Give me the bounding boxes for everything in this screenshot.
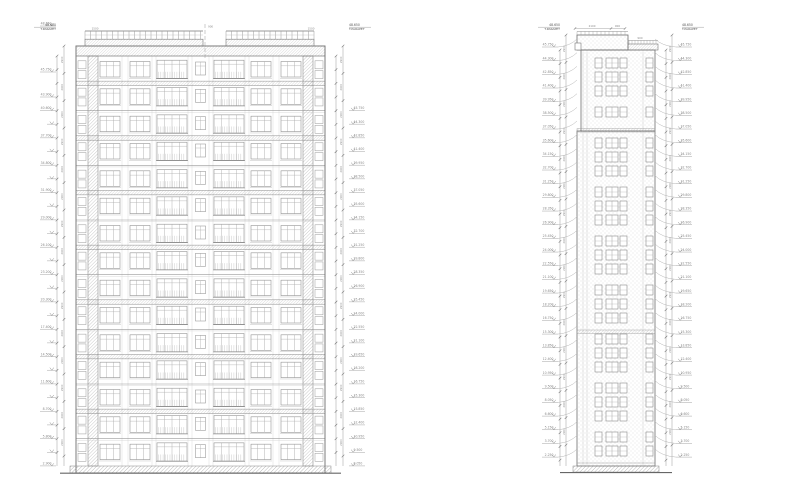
window (100, 335, 120, 351)
base-plinth (573, 466, 659, 472)
dim-number: 900 (615, 24, 620, 28)
level-symbol (50, 395, 54, 398)
bulkhead-band (226, 39, 314, 46)
side-elevation: 2100900900290029002900290029002900290029… (542, 24, 692, 472)
corner-label: 48.650T.PARAPET (348, 23, 371, 31)
hatched-pier (88, 56, 98, 466)
dim-number: 2900 (60, 330, 64, 337)
edge-window (315, 361, 323, 369)
edge-window (78, 170, 86, 178)
level-value: 44.300 (681, 56, 692, 60)
leader-arc (655, 408, 676, 416)
slab-band (76, 81, 325, 85)
leader-arc (558, 189, 577, 197)
level-value: 40.600 (41, 106, 52, 110)
level-value: 18.200 (681, 302, 692, 306)
leader-arc (558, 299, 577, 307)
leader-arc (558, 435, 577, 443)
leader-arc (558, 449, 577, 457)
window (100, 171, 120, 187)
window (281, 307, 301, 323)
level-value: 25.450 (354, 298, 365, 302)
slab-band (76, 354, 325, 358)
level-value: 24.000 (681, 248, 692, 252)
level-value: 5.800 (43, 434, 52, 438)
level-value: 39.950 (354, 161, 365, 165)
edge-window (315, 317, 323, 325)
level-value: 31.250 (354, 243, 365, 247)
level-value: 28.350 (543, 207, 554, 211)
dim-number: 2900 (60, 439, 64, 446)
leader-arc (655, 394, 676, 402)
window (251, 171, 271, 187)
level-value: 34.150 (681, 152, 692, 156)
window (281, 198, 301, 214)
floor-row (76, 354, 325, 379)
dim-number: 2900 (60, 275, 64, 282)
window (100, 253, 120, 269)
level-symbol (50, 313, 54, 316)
window (130, 335, 150, 351)
edge-window (78, 98, 86, 106)
leader-arc (655, 162, 676, 170)
level-value: 32.700 (543, 166, 554, 170)
level-value: 20.300 (41, 298, 52, 302)
window (251, 225, 271, 241)
edge-window (78, 225, 86, 233)
edge-window (78, 61, 86, 69)
level-value: 11.600 (41, 380, 52, 384)
level-value: 31.250 (681, 179, 692, 183)
window (281, 171, 301, 187)
level-symbol (50, 176, 54, 179)
edge-window (78, 262, 86, 270)
level-value: 12.400 (354, 421, 365, 425)
level-value: 45.750 (41, 68, 52, 72)
dim-number: 2900 (339, 111, 343, 118)
leader-arc (655, 299, 676, 307)
dim-number: 2900 (60, 193, 64, 200)
dim-number: 1500 (92, 27, 99, 31)
floor-row (76, 136, 325, 161)
dim-number: 2900 (60, 248, 64, 255)
edge-window (78, 279, 86, 287)
level-value: 26.900 (543, 220, 554, 224)
floor-row (76, 190, 325, 215)
dim-number: 2900 (339, 166, 343, 173)
level-value: 22.550 (681, 261, 692, 265)
leader-arc (655, 367, 676, 375)
edge-window (315, 197, 323, 205)
leader-arc (558, 258, 577, 266)
window (251, 253, 271, 269)
level-value: 39.950 (681, 97, 692, 101)
window (130, 307, 150, 323)
level-value: 6.600 (681, 412, 690, 416)
level-value: 19.650 (543, 289, 554, 293)
level-value: 25.450 (543, 234, 554, 238)
level-value: 2.250 (545, 453, 554, 457)
window (130, 280, 150, 296)
roof-bulkhead (577, 35, 628, 50)
window (251, 280, 271, 296)
slab-band (577, 330, 655, 334)
window (281, 362, 301, 378)
edge-window (78, 235, 86, 243)
level-value: 16.750 (354, 380, 365, 384)
leader-arc (655, 271, 676, 279)
level-value: 32.700 (681, 166, 692, 170)
leader-arc (655, 203, 676, 211)
edge-window (315, 235, 323, 243)
leader-arc (655, 326, 676, 334)
corner-label: 48.650T.PARAPET (681, 23, 704, 31)
level-value: 8.050 (681, 398, 690, 402)
annotations: 48.650T.PARAPET48.650T.PARAPET48.650T.PA… (34, 23, 704, 31)
window (100, 389, 120, 405)
level-value: 10.950 (681, 371, 692, 375)
level-value: 21.100 (354, 339, 365, 343)
level-value: 14.500 (41, 352, 52, 356)
level-value: 19.650 (354, 352, 365, 356)
base-plinth (70, 466, 331, 473)
edge-window (315, 344, 323, 352)
level-value: 22.550 (354, 325, 365, 329)
edge-window (315, 426, 323, 434)
level-value: 26.100 (41, 243, 52, 247)
level-value: 17.400 (41, 325, 52, 329)
window (130, 362, 150, 378)
level-value: 31.250 (543, 179, 554, 183)
level-value: 10.950 (543, 371, 554, 375)
dim-number: 2900 (60, 138, 64, 145)
corner-label-name: T.PARAPET (348, 27, 365, 31)
level-value: 39.950 (543, 97, 554, 101)
dim-number: 2100 (589, 24, 596, 28)
window (100, 307, 120, 323)
leader-arc (558, 394, 577, 402)
dim-number: 2900 (60, 384, 64, 391)
window (251, 89, 271, 105)
window (251, 362, 271, 378)
level-value: 5.150 (545, 425, 554, 429)
leader-arc (558, 53, 577, 61)
level-value: 12.400 (543, 357, 554, 361)
leader-arc (655, 244, 676, 252)
dim-number: 2900 (339, 138, 343, 145)
edge-window (78, 153, 86, 161)
edge-window (78, 389, 86, 397)
level-value: 15.300 (354, 393, 365, 397)
window (100, 116, 120, 132)
edge-window (78, 197, 86, 205)
edge-window (78, 115, 86, 123)
dim-number: 2900 (339, 56, 343, 63)
level-value: 8.700 (43, 407, 52, 411)
leader-arc (558, 162, 577, 170)
level-value: 23.200 (41, 270, 52, 274)
wall-step (575, 43, 581, 50)
window (130, 389, 150, 405)
dim-number: 2900 (60, 56, 64, 63)
level-value: 13.850 (681, 343, 692, 347)
edge-window (78, 125, 86, 133)
level-symbol (50, 204, 54, 207)
edge-window (78, 88, 86, 96)
window (130, 253, 150, 269)
level-value: 18.200 (354, 366, 365, 370)
leader-arc (655, 285, 676, 293)
edge-window (315, 307, 323, 315)
window (251, 389, 271, 405)
leader-arc (558, 66, 577, 74)
roof-parapet (76, 46, 325, 56)
dim-number: 2900 (60, 220, 64, 227)
leader-arc (655, 312, 676, 320)
level-symbol (50, 231, 54, 234)
dim-number: 2900 (60, 166, 64, 173)
slab-band (76, 190, 325, 194)
edge-window (315, 225, 323, 233)
edge-window (315, 61, 323, 69)
leader-arc (558, 230, 577, 238)
edge-window (315, 115, 323, 123)
level-symbol (50, 368, 54, 371)
window (130, 62, 150, 78)
leader-arc (655, 176, 676, 184)
leader-arc (655, 230, 676, 238)
edge-window (78, 334, 86, 342)
edge-window (315, 262, 323, 270)
dim-number: 2900 (339, 84, 343, 91)
level-value: 26.900 (681, 220, 692, 224)
leader-arc (558, 203, 577, 211)
level-value: 37.700 (41, 134, 52, 138)
corner-label: 48.650T.PARAPET (34, 23, 56, 31)
level-value: 37.050 (681, 125, 692, 129)
edge-window (315, 389, 323, 397)
level-value: 15.300 (681, 330, 692, 334)
dim-number: 2900 (60, 302, 64, 309)
leader-arc (558, 312, 577, 320)
edge-window (78, 289, 86, 297)
leader-arc (655, 353, 676, 361)
slab-band (76, 300, 325, 304)
window (251, 307, 271, 323)
leader-arc (558, 353, 577, 361)
level-value: 29.800 (543, 193, 554, 197)
edge-window (315, 125, 323, 133)
dim-number: 1500 (308, 27, 315, 31)
window (100, 143, 120, 159)
window (251, 417, 271, 433)
level-value: 35.600 (354, 202, 365, 206)
window (281, 62, 301, 78)
leader-arc (655, 121, 676, 129)
corner-label: 48.650T.PARAPET (538, 23, 560, 31)
level-value: 41.400 (354, 147, 365, 151)
leader-arc (655, 135, 676, 143)
window (100, 417, 120, 433)
leader-arc (558, 176, 577, 184)
level-value: 9.500 (681, 384, 690, 388)
corner-label-name: T.PARAPET (543, 27, 560, 31)
level-value: 18.200 (543, 302, 554, 306)
level-value: 28.350 (354, 270, 365, 274)
window (251, 143, 271, 159)
floor-row (76, 81, 325, 106)
edge-window (315, 71, 323, 79)
edge-window (78, 416, 86, 424)
window (251, 198, 271, 214)
edge-window (315, 334, 323, 342)
level-value: 42.850 (354, 134, 365, 138)
edge-window (315, 170, 323, 178)
edge-window (78, 426, 86, 434)
dim-number: 2900 (339, 302, 343, 309)
level-value: 35.600 (681, 138, 692, 142)
leader-arc (655, 435, 676, 443)
edge-window (78, 371, 86, 379)
edge-window (315, 252, 323, 260)
level-symbol (50, 258, 54, 261)
dim-number: 2900 (60, 412, 64, 419)
window (100, 444, 120, 460)
window (100, 198, 120, 214)
edge-window (78, 207, 86, 215)
level-value: 10.950 (354, 434, 365, 438)
level-value: 24.000 (543, 248, 554, 252)
edge-window (315, 443, 323, 451)
level-value: 35.600 (543, 138, 554, 142)
dim-number: 2900 (60, 357, 64, 364)
window (100, 280, 120, 296)
slab-band (76, 245, 325, 249)
roof-bulkhead (85, 31, 203, 46)
slab-band (577, 129, 655, 133)
level-value: 34.150 (543, 152, 554, 156)
window (281, 444, 301, 460)
leader-arc (655, 148, 676, 156)
level-value: 8.050 (545, 398, 554, 402)
edge-window (315, 416, 323, 424)
dim-number: 2900 (339, 248, 343, 255)
corner-label-name: T.PARAPET (39, 27, 56, 31)
leader-arc (655, 381, 676, 389)
leader-arc (558, 422, 577, 430)
level-value: 43.900 (41, 93, 52, 97)
edge-window (78, 252, 86, 260)
floor-row (76, 409, 325, 434)
level-value: 12.400 (681, 357, 692, 361)
edge-window (78, 361, 86, 369)
edge-window (315, 453, 323, 461)
floor-row (76, 300, 325, 325)
edge-window (315, 399, 323, 407)
leader-arc (655, 340, 676, 348)
window (130, 89, 150, 105)
edge-window (78, 399, 86, 407)
window (281, 225, 301, 241)
level-symbol (50, 149, 54, 152)
window (251, 444, 271, 460)
level-value: 45.750 (543, 43, 554, 47)
level-value: 37.050 (354, 188, 365, 192)
dim-number: 2900 (339, 193, 343, 200)
leader-arc (655, 258, 676, 266)
roof-parapet (628, 44, 658, 50)
edge-window (315, 207, 323, 215)
dim-number: 900 (208, 25, 213, 29)
hatched-pier (303, 56, 313, 466)
window (130, 116, 150, 132)
level-value: 2.250 (681, 453, 690, 457)
level-value: 15.300 (543, 330, 554, 334)
level-value: 41.400 (543, 84, 554, 88)
window (130, 417, 150, 433)
dim-number: 2900 (339, 330, 343, 337)
edge-window (78, 71, 86, 79)
edge-window (315, 371, 323, 379)
level-value: 38.500 (543, 111, 554, 115)
level-value: 26.900 (354, 284, 365, 288)
dim-number: 2900 (339, 357, 343, 364)
leader-arc (655, 217, 676, 225)
edge-window (315, 153, 323, 161)
window (281, 253, 301, 269)
level-value: 45.750 (354, 106, 365, 110)
leader-arc (558, 340, 577, 348)
level-value: 8.050 (354, 462, 363, 466)
level-symbol (50, 422, 54, 425)
dim-number: 2900 (60, 84, 64, 91)
roof-bulkhead (226, 31, 314, 46)
floor-row (76, 245, 325, 270)
level-value: 25.450 (681, 234, 692, 238)
leader-arc (655, 449, 676, 457)
leader-arc (558, 367, 577, 375)
window (251, 62, 271, 78)
edge-window (78, 317, 86, 325)
window (100, 89, 120, 105)
level-value: 13.850 (543, 343, 554, 347)
level-value: 22.550 (543, 261, 554, 265)
level-value: 32.700 (354, 229, 365, 233)
level-value: 9.500 (545, 384, 554, 388)
window (100, 225, 120, 241)
edge-window (78, 344, 86, 352)
window (100, 362, 120, 378)
leader-arc (558, 285, 577, 293)
slab-band (76, 409, 325, 413)
window (281, 335, 301, 351)
level-value: 21.100 (543, 275, 554, 279)
window (251, 116, 271, 132)
level-value: 9.500 (354, 448, 363, 452)
leader-arc (655, 107, 676, 115)
level-value: 37.050 (543, 125, 554, 129)
dim-number: 2900 (60, 111, 64, 118)
leader-arc (655, 53, 676, 61)
level-value: 34.150 (354, 216, 365, 220)
level-value: 2.900 (43, 462, 52, 466)
level-value: 24.000 (354, 311, 365, 315)
level-symbol (50, 450, 54, 453)
window (130, 225, 150, 241)
dim-number: 2900 (339, 220, 343, 227)
leader-arc (558, 271, 577, 279)
edge-window (78, 307, 86, 315)
